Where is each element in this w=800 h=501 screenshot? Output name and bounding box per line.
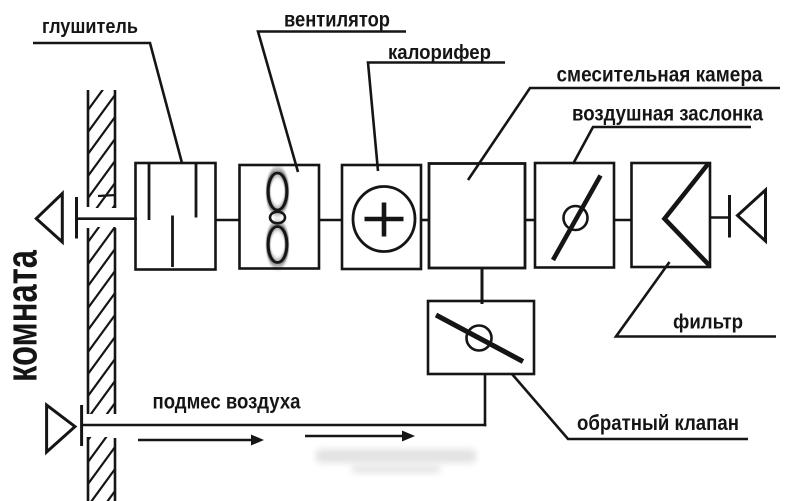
svg-text:фильтр: фильтр: [673, 312, 743, 334]
svg-text:глушитель: глушитель: [42, 16, 138, 38]
svg-text:калорифер: калорифер: [388, 42, 491, 64]
svg-text:комната: комната: [0, 250, 47, 382]
svg-text:смесительная камера: смесительная камера: [557, 64, 763, 87]
svg-text:подмес воздуха: подмес воздуха: [153, 391, 301, 414]
svg-text:обратный клапан: обратный клапан: [577, 412, 739, 435]
svg-text:вентилятор: вентилятор: [284, 9, 390, 32]
svg-text:воздушная заслонка: воздушная заслонка: [572, 103, 763, 126]
